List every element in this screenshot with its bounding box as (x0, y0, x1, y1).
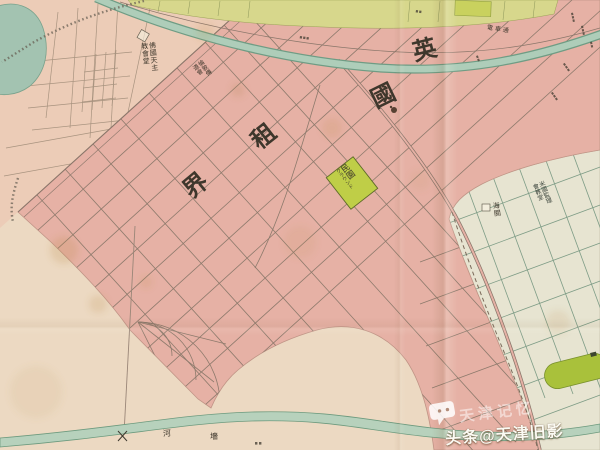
map-canvas (0, 0, 600, 450)
vertical-fold-crease (432, 0, 458, 450)
horizontal-fold-crease (0, 318, 600, 336)
customs-building-symbol (482, 204, 490, 211)
vertical-fold-crease-2 (394, 0, 406, 450)
yellow-block (455, 0, 492, 16)
map-scan-tianjin-british-concession: 英 國 租 界 佛國天主 教會堂 倫敦傳 道會 米國監理 會教堂 海關 民園 グ… (0, 0, 600, 450)
